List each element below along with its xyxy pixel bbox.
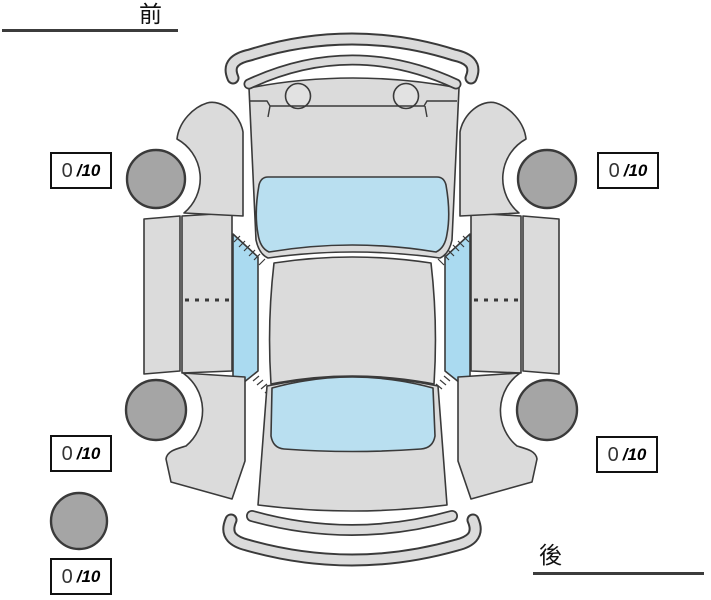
score-box-overall: 0 /10 <box>50 558 112 595</box>
rear-label: 後 <box>539 544 562 567</box>
score-box-front-right: 0 /10 <box>597 152 659 189</box>
overall-score-circle <box>51 493 107 549</box>
headlight-left <box>286 84 311 109</box>
score-max: /10 <box>623 446 647 463</box>
front-fender-left <box>177 102 243 216</box>
side-panels-left <box>126 102 271 499</box>
score-value: 0 <box>62 161 73 181</box>
front-label: 前 <box>139 3 162 26</box>
score-box-rear-left: 0 /10 <box>50 435 112 472</box>
score-value: 0 <box>609 161 620 181</box>
rocker-panel-left <box>144 216 180 374</box>
score-max: /10 <box>77 568 101 585</box>
car-top-view-drawing <box>0 0 711 600</box>
roof-panel <box>270 257 436 384</box>
rear-window <box>271 377 435 452</box>
score-value: 0 <box>62 567 73 587</box>
score-value: 0 <box>608 445 619 465</box>
side-window-left <box>233 234 258 391</box>
front-underline <box>2 29 178 32</box>
score-box-front-left: 0 /10 <box>50 152 112 189</box>
door-panel-left <box>182 213 232 373</box>
rear-underline <box>533 572 704 575</box>
wheel-rear-left <box>126 380 186 440</box>
score-value: 0 <box>62 444 73 464</box>
score-max: /10 <box>624 162 648 179</box>
score-max: /10 <box>77 162 101 179</box>
score-max: /10 <box>77 445 101 462</box>
headlight-right <box>394 84 419 109</box>
score-box-rear-right: 0 /10 <box>596 436 658 473</box>
wheel-front-left <box>127 150 185 208</box>
vehicle-condition-diagram: 前 後 0 /10 0 /10 0 /10 0 /10 0 /10 <box>0 0 711 600</box>
windshield <box>256 177 449 252</box>
